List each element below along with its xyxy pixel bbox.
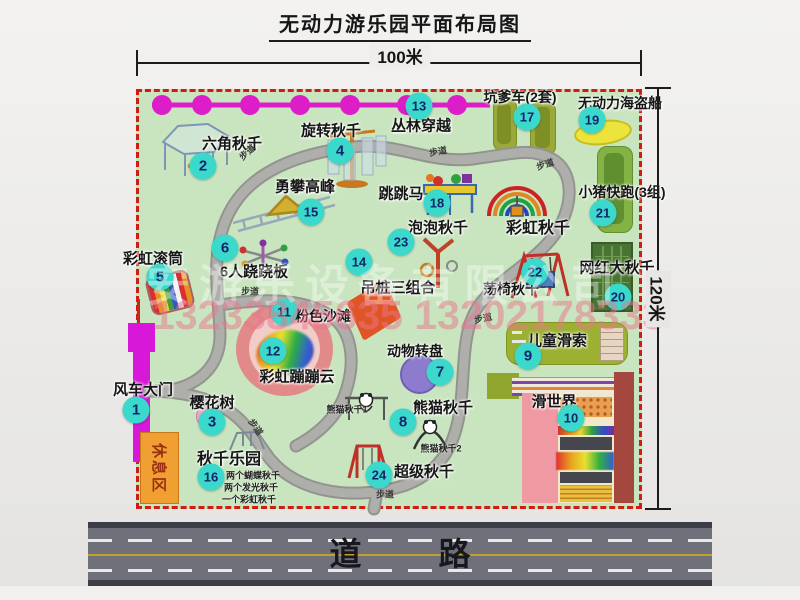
walkway-label-4: 步道: [241, 285, 259, 298]
attraction-badge-9[interactable]: 9: [515, 343, 542, 370]
attraction-badge-2[interactable]: 2: [190, 153, 217, 180]
attraction-badge-17[interactable]: 17: [514, 104, 541, 131]
attraction-label-1: 风车大门: [113, 379, 173, 400]
attraction-label-8: 熊猫秋千: [413, 397, 473, 418]
attraction-badge-8[interactable]: 8: [390, 409, 417, 436]
panda-swing-1-label: 熊猫秋千1: [326, 403, 367, 416]
attraction-label-12: 彩虹蹦蹦云: [259, 366, 334, 387]
walkway-label-2: 步道: [428, 143, 448, 159]
attraction-label-14: 吊桩三组合: [360, 277, 435, 298]
road-label: 道 路: [296, 529, 505, 575]
attraction-badge-10[interactable]: 10: [558, 405, 585, 432]
walkway-label-7: 步道: [246, 416, 267, 438]
swing-note-3: 一个彩虹秋千: [222, 493, 276, 506]
attraction-badge-13[interactable]: 13: [406, 93, 433, 120]
map-label-layer: 彩虹秋千 熊猫秋千1 熊猫秋千2 两个蝴蝶秋千 两个发光秋千 一个彩虹秋千 风车…: [0, 0, 800, 600]
attraction-label-11: 粉色沙滩: [295, 306, 351, 326]
attraction-label-24: 超级秋千: [394, 461, 454, 482]
attraction-badge-1[interactable]: 1: [123, 397, 150, 424]
attraction-label-4: 旋转秋千: [301, 120, 361, 141]
attraction-badge-16[interactable]: 16: [198, 464, 225, 491]
attraction-badge-21[interactable]: 21: [590, 200, 617, 227]
attraction-badge-6[interactable]: 6: [212, 235, 239, 262]
attraction-badge-20[interactable]: 20: [605, 284, 632, 311]
attraction-badge-3[interactable]: 3: [199, 409, 226, 436]
walkway-label-3: 步道: [534, 155, 555, 173]
park-layout-plan: 无动力游乐园平面布局图 100米 120米: [0, 0, 800, 600]
dimension-label-width: 100米: [369, 43, 430, 68]
attraction-badge-15[interactable]: 15: [298, 199, 325, 226]
dimension-tick-top-left: [136, 50, 138, 76]
attraction-badge-4[interactable]: 4: [327, 138, 354, 165]
attraction-badge-5[interactable]: 5: [147, 264, 174, 291]
dimension-label-height: 120米: [646, 270, 671, 327]
dimension-tick-top-right: [640, 50, 642, 76]
attraction-badge-23[interactable]: 23: [388, 229, 415, 256]
rainbow-swing-label: 彩虹秋千: [506, 214, 570, 238]
walkway-label-6: 步道: [376, 488, 394, 501]
attraction-label-21: 小猪快跑(3组): [578, 182, 665, 202]
walkway-label-5: 步道: [473, 310, 493, 326]
dimension-tick-right-bottom: [645, 508, 671, 510]
panda-swing-2-label: 熊猫秋千2: [420, 442, 461, 455]
attraction-label-15: 勇攀高峰: [275, 176, 335, 197]
attraction-badge-22[interactable]: 22: [522, 259, 549, 286]
attraction-label-6: 6人跷跷板: [220, 261, 288, 282]
attraction-badge-14[interactable]: 14: [346, 249, 373, 276]
dimension-tick-right-top: [645, 87, 671, 89]
attraction-label-7: 动物转盘: [387, 341, 443, 361]
attraction-label-23: 泡泡秋千: [408, 217, 468, 238]
road: 道 路: [88, 522, 712, 586]
attraction-badge-18[interactable]: 18: [424, 190, 451, 217]
attraction-badge-12[interactable]: 12: [260, 338, 287, 365]
attraction-badge-11[interactable]: 11: [271, 299, 298, 326]
page-title: 无动力游乐园平面布局图: [269, 8, 531, 42]
attraction-badge-19[interactable]: 19: [579, 107, 606, 134]
attraction-label-20: 网红大秋千: [579, 257, 654, 278]
attraction-label-18: 跳跳马: [378, 183, 423, 204]
attraction-badge-24[interactable]: 24: [366, 462, 393, 489]
attraction-badge-7[interactable]: 7: [427, 359, 454, 386]
page-footer-strip: [0, 586, 800, 600]
